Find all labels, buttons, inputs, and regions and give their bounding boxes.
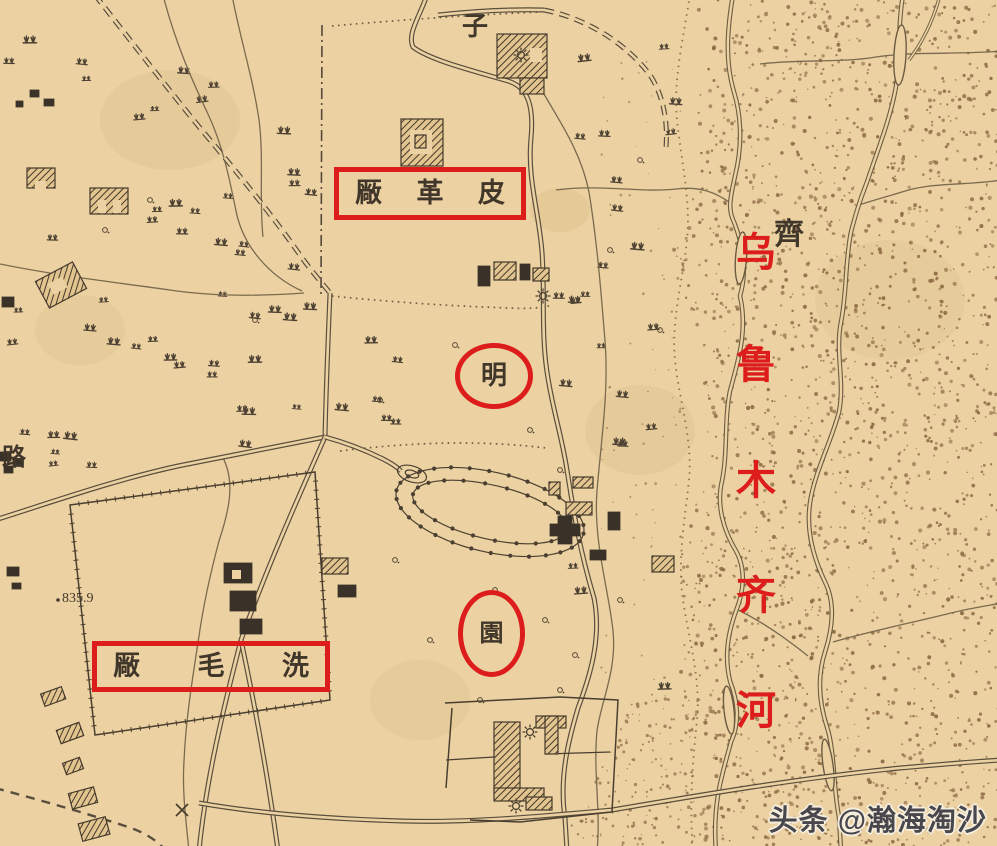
map-artwork (0, 0, 997, 846)
river-name-char-3: 木 (733, 461, 779, 501)
leather-factory-char-3: 皮 (478, 180, 505, 207)
annotation-circle-yuan: 園 (458, 590, 525, 677)
shrub-symbols (103, 158, 665, 704)
river-name-char-4: 齐 (733, 576, 779, 616)
map-label-zi: 子 (462, 14, 488, 40)
garden-oval-paths (387, 451, 592, 572)
leather-factory-char-2: 革 (417, 180, 444, 207)
ming-label: 明 (481, 363, 507, 389)
historical-map: 子 齊 路 835.9 厰 革 皮 厰 毛 洗 明 園 乌 鲁 木 齐 河 头条… (0, 0, 997, 846)
river-name-char-2: 鲁 (733, 345, 779, 385)
river-name-char-5: 河 (733, 691, 779, 731)
wool-washing-char-3: 洗 (282, 653, 309, 680)
yuan-label: 園 (480, 622, 504, 646)
annotation-box-leather-factory: 厰 革 皮 (334, 167, 526, 220)
elevation-label: 835.9 (62, 592, 94, 606)
annotation-circle-ming: 明 (455, 343, 533, 409)
map-label-lu: 路 (2, 446, 26, 470)
annotation-box-wool-washing: 厰 毛 洗 (92, 641, 330, 692)
leather-factory-char-1: 厰 (355, 180, 382, 207)
wool-washing-char-2: 毛 (198, 653, 225, 680)
river-name-char-1: 乌 (733, 233, 779, 273)
wool-washing-char-1: 厰 (113, 653, 140, 680)
watermark: 头条 @瀚海淘沙 (769, 797, 987, 839)
